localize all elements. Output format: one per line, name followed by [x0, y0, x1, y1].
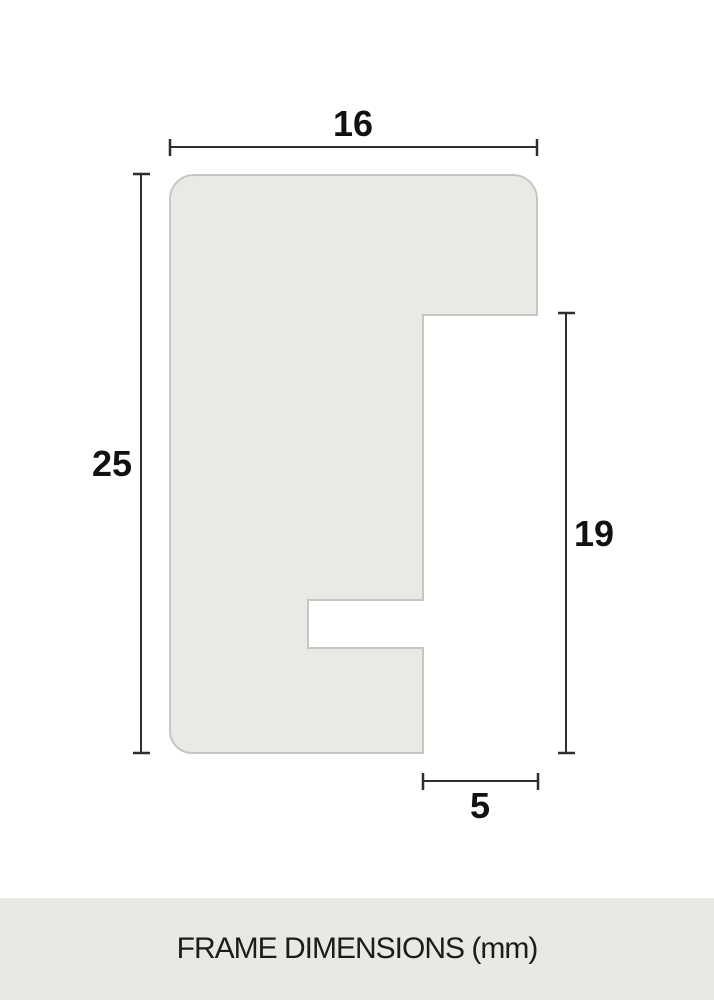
diagram-area: 16 25 19 5: [0, 0, 714, 898]
frame-profile-shape: [170, 175, 537, 753]
frame-dimensions-screenshot: 16 25 19 5: [0, 0, 714, 1000]
footer-bar: FRAME DIMENSIONS (mm): [0, 898, 714, 1000]
dimension-height: 25: [92, 174, 150, 753]
dimension-label-rabbet-depth: 5: [470, 785, 490, 826]
dimension-label-rabbet-height: 19: [574, 513, 614, 554]
dimension-width: 16: [170, 103, 537, 156]
footer-title: FRAME DIMENSIONS (mm): [177, 932, 538, 966]
dimension-rabbet-depth: 5: [423, 773, 538, 826]
frame-profile-diagram: 16 25 19 5: [0, 0, 714, 898]
dimension-rabbet-height: 19: [558, 313, 614, 753]
dimension-label-width: 16: [333, 103, 373, 144]
dimension-label-height: 25: [92, 443, 132, 484]
